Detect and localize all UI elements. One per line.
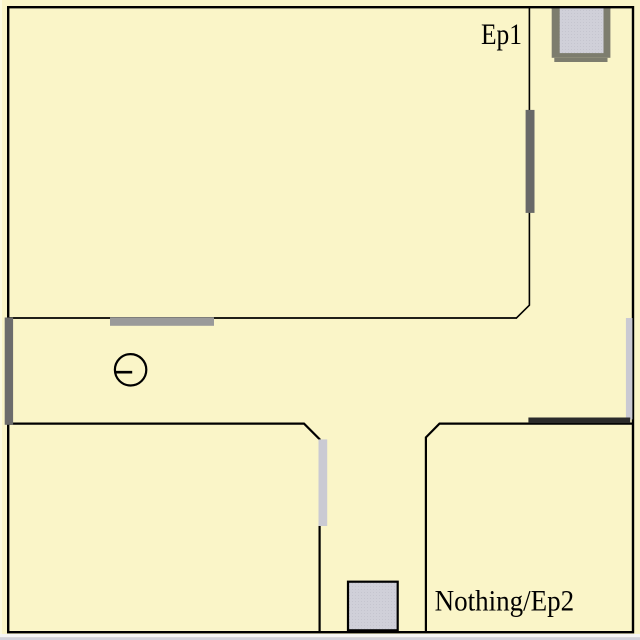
svg-text:Ep1: Ep1: [481, 19, 522, 51]
svg-text:Nothing/Ep2: Nothing/Ep2: [435, 586, 574, 618]
